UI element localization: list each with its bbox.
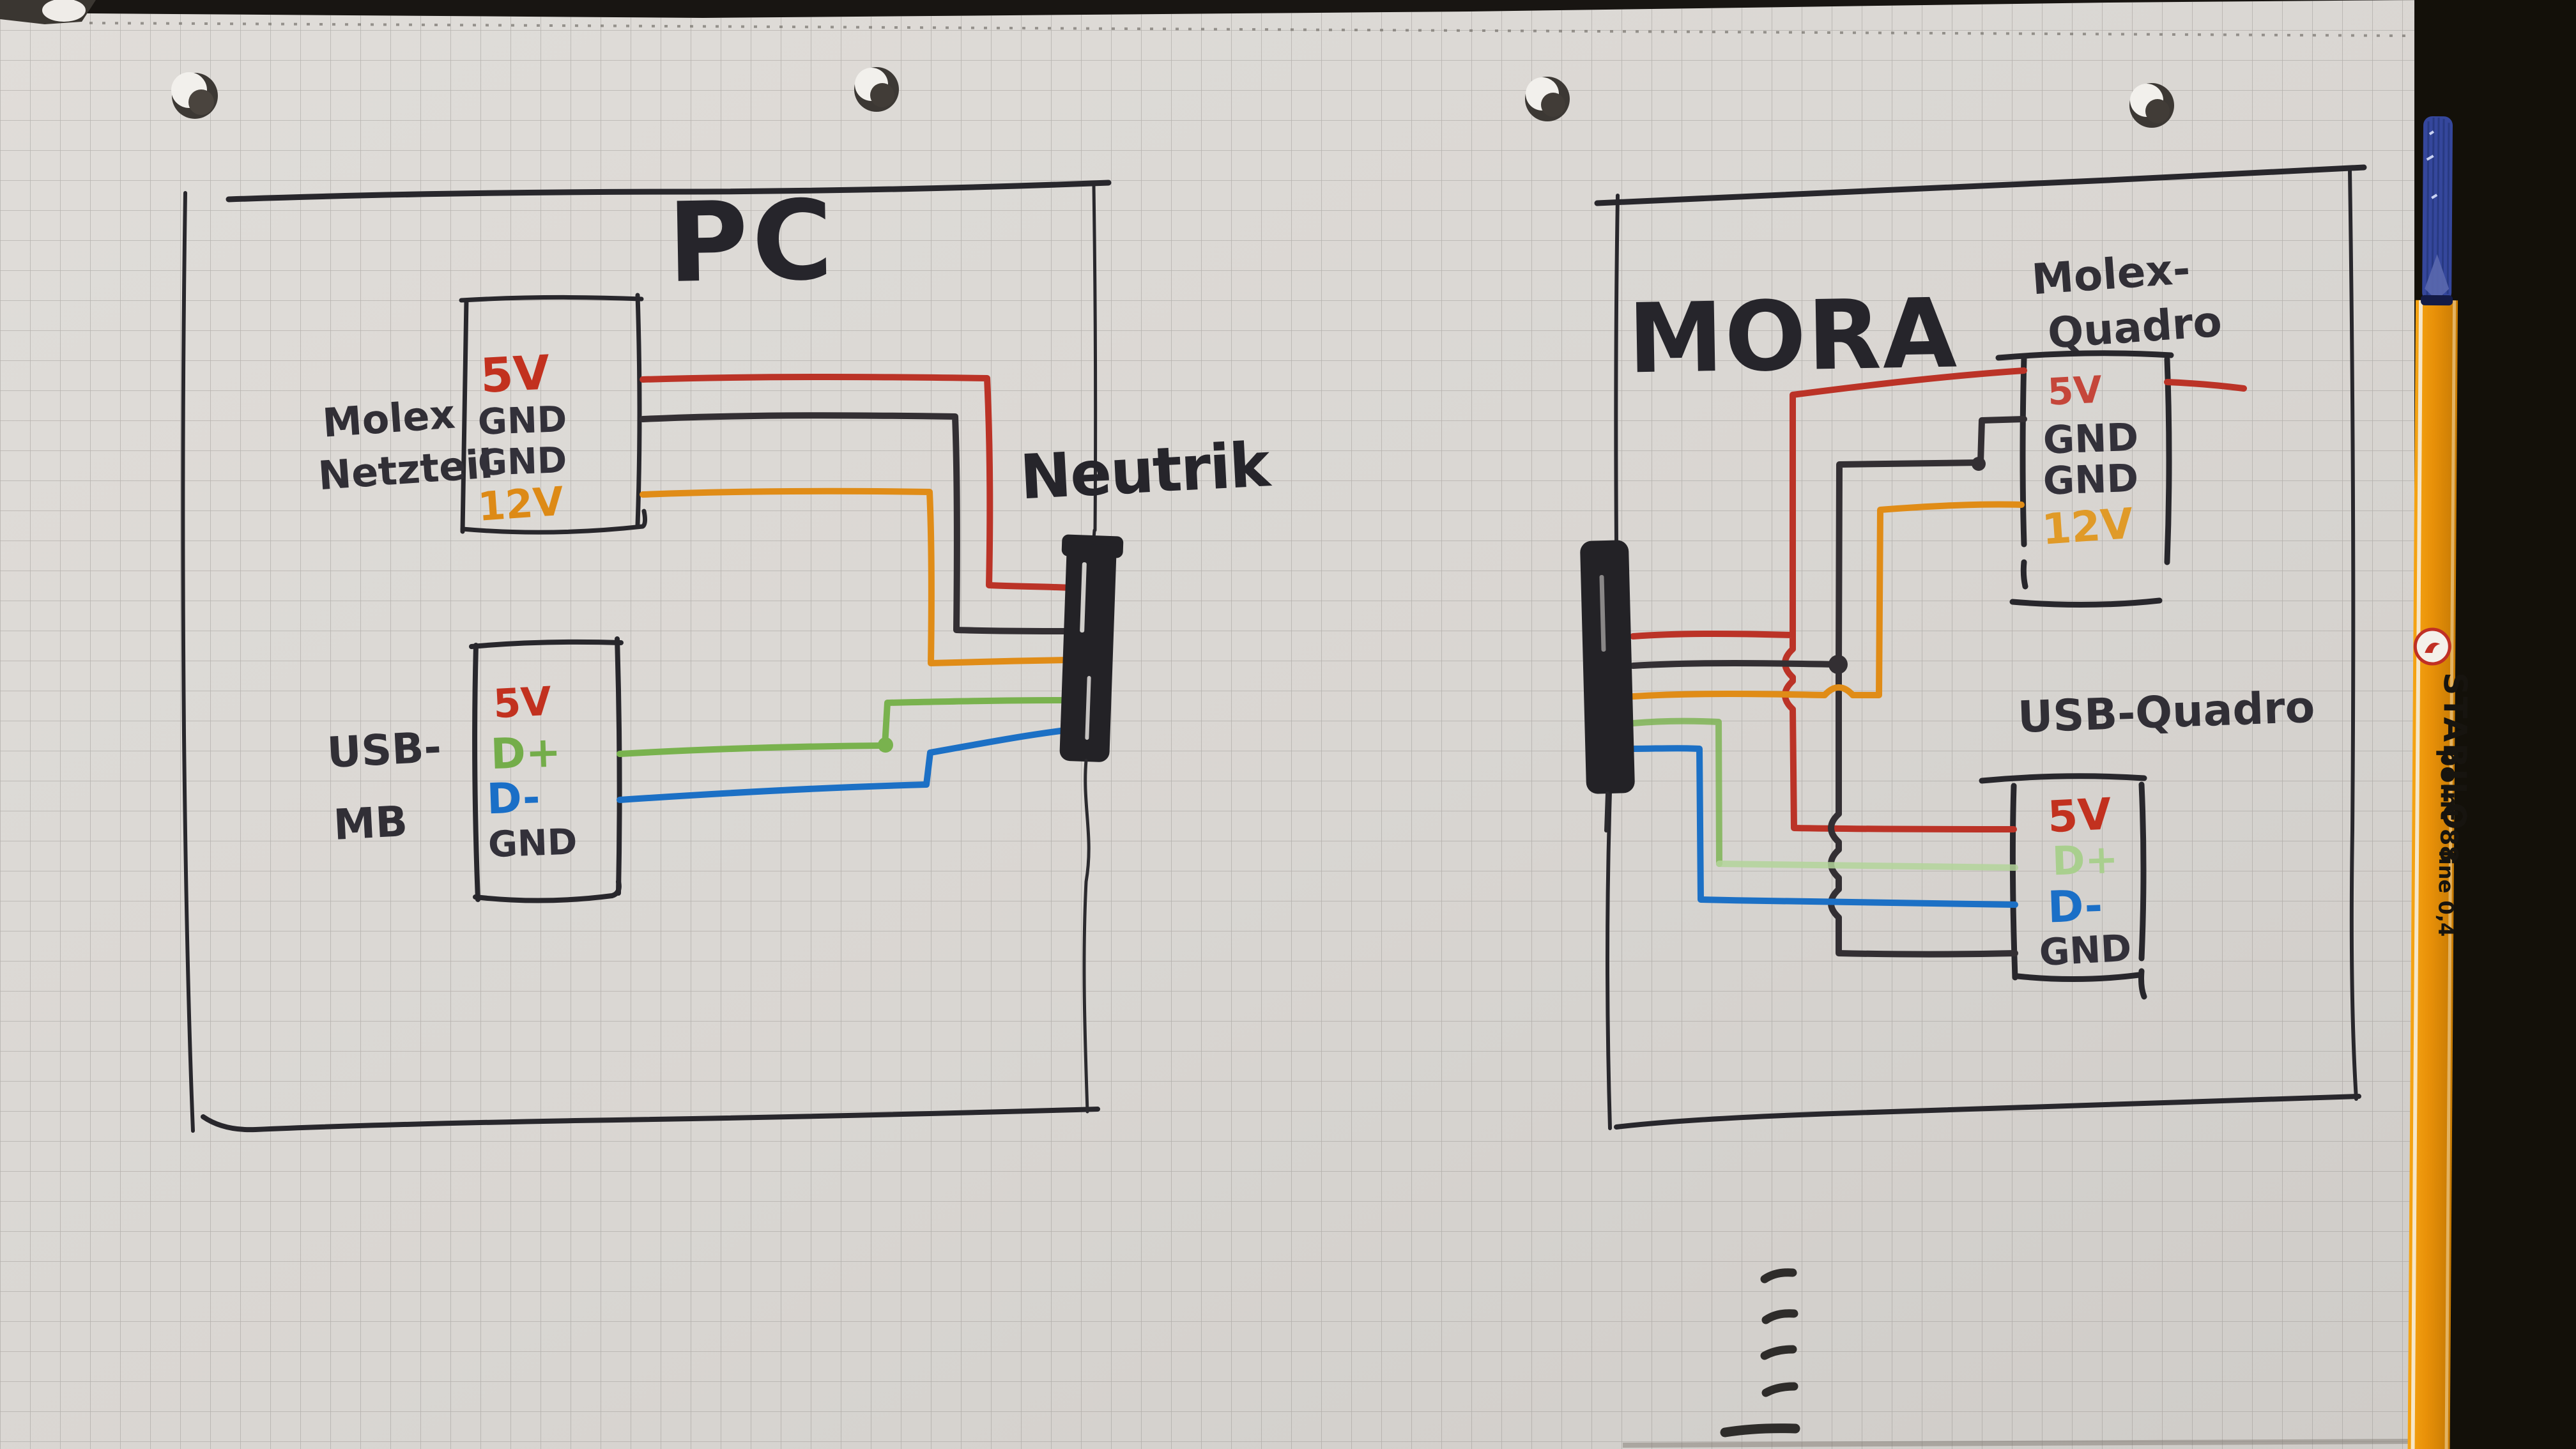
pin-label: 5V — [2046, 367, 2103, 413]
punch-hole — [1525, 77, 1570, 121]
pin-label: 5V — [492, 678, 553, 728]
pin-label: D- — [2047, 881, 2104, 933]
pin-label: D- — [486, 772, 541, 824]
neutrik-connector-right — [1580, 540, 1635, 831]
pin-label: GND — [477, 440, 568, 484]
pin-label: 5V — [2046, 789, 2113, 843]
usb-mb-label-2: MB — [332, 797, 409, 850]
wire-black-step-junction — [1972, 457, 1986, 471]
wire-green-mora-faded — [1719, 864, 2015, 868]
punch-hole — [854, 67, 899, 112]
wire-black-junction — [1828, 655, 1848, 674]
pin-label: GND — [2043, 456, 2140, 504]
usb-quadro-label: USB-Quadro — [2017, 682, 2316, 743]
pen-tip-size: fine 0,4 — [2434, 850, 2458, 937]
usb-mb-label-1: USB- — [326, 723, 443, 778]
neutrik-label: Neutrik — [1018, 429, 1273, 513]
molex-netzteil-label-1: Molex — [321, 390, 456, 446]
pen-model: point 88 — [2435, 749, 2464, 862]
pin-label: GND — [487, 821, 578, 866]
pc-title: PC — [666, 176, 838, 307]
pen-cap — [2421, 116, 2454, 305]
pin-label: GND — [2038, 926, 2133, 974]
photo-of-hand-drawn-wiring-diagram: PC Molex Netzteil 5V GND GND 12V USB- MB… — [0, 0, 2576, 1449]
stabilo-logo — [2415, 629, 2449, 664]
pin-label: D+ — [2051, 836, 2119, 885]
punch-hole — [2129, 83, 2174, 128]
pin-label: GND — [477, 399, 568, 443]
pen-cap-ring — [2421, 295, 2453, 305]
wire-green-junction — [878, 737, 893, 753]
pin-label: 5V — [479, 345, 551, 404]
pin-label: D+ — [490, 727, 562, 779]
pin-label: 12V — [2040, 499, 2135, 555]
mora-title: MORA — [1627, 278, 1959, 395]
pin-label: 12V — [477, 478, 565, 530]
